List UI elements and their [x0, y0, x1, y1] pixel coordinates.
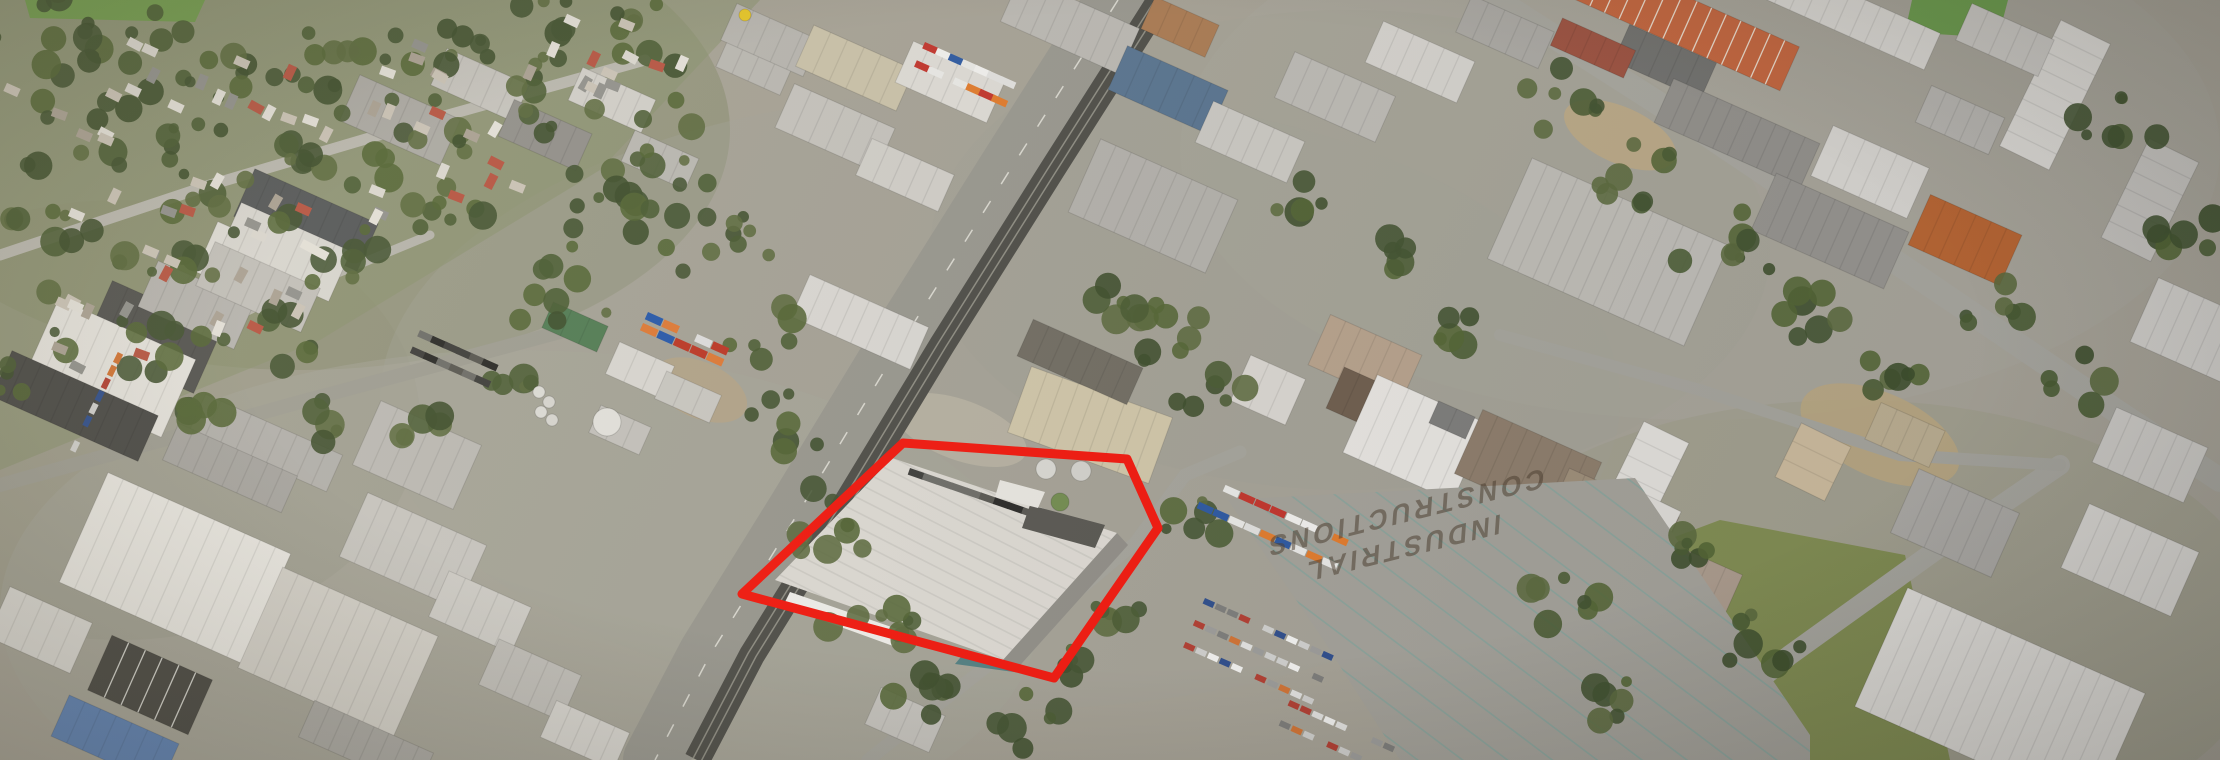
- tree: [730, 236, 747, 253]
- tree: [601, 308, 611, 318]
- tree: [359, 224, 370, 235]
- tree: [1668, 249, 1692, 273]
- tree: [1995, 297, 2013, 315]
- tree: [698, 208, 717, 227]
- tree: [1682, 538, 1693, 549]
- tree: [1783, 277, 1812, 306]
- tank: [1071, 461, 1091, 481]
- tank: [533, 386, 545, 398]
- tree: [185, 76, 196, 87]
- tree: [13, 383, 31, 401]
- tree: [698, 174, 717, 193]
- tree: [50, 327, 60, 337]
- tree: [778, 304, 807, 333]
- tree: [2144, 124, 2169, 149]
- tree: [875, 609, 887, 621]
- tree: [810, 438, 824, 452]
- tree: [673, 177, 687, 191]
- tree: [1626, 137, 1641, 152]
- tree: [1862, 379, 1884, 401]
- tree: [432, 196, 446, 210]
- tree: [298, 76, 315, 93]
- tree: [533, 259, 554, 280]
- tree: [2199, 239, 2216, 256]
- tree: [1793, 640, 1806, 653]
- tree: [6, 207, 30, 231]
- tree: [634, 110, 652, 128]
- tree: [1044, 712, 1056, 724]
- tree: [2081, 129, 2092, 140]
- tree: [296, 341, 318, 363]
- tree: [679, 155, 690, 166]
- tree: [750, 348, 773, 371]
- tree: [744, 407, 758, 421]
- tree: [73, 145, 89, 161]
- tree: [270, 354, 295, 379]
- tree: [412, 219, 428, 235]
- tree: [2102, 125, 2125, 148]
- tree: [518, 103, 533, 118]
- tree: [910, 660, 940, 690]
- tree: [207, 398, 236, 427]
- tree: [1534, 120, 1553, 139]
- tree: [302, 398, 329, 425]
- tree: [584, 99, 605, 120]
- tree: [0, 356, 16, 373]
- tree: [302, 26, 316, 40]
- tree: [1205, 361, 1232, 388]
- tank: [546, 414, 558, 426]
- tree: [345, 271, 359, 285]
- tree: [1161, 524, 1172, 535]
- tree: [1633, 191, 1653, 211]
- tree: [298, 142, 323, 167]
- tree: [702, 243, 720, 261]
- tree: [1293, 170, 1316, 193]
- tree: [1732, 613, 1750, 631]
- tree: [523, 284, 546, 307]
- tree: [1901, 367, 1915, 381]
- tree: [563, 218, 583, 238]
- tree: [921, 704, 941, 724]
- tree: [179, 169, 190, 180]
- tank: [1051, 493, 1069, 511]
- tree: [2041, 370, 2058, 387]
- tree: [1596, 183, 1618, 205]
- tree: [1270, 203, 1283, 216]
- tank: [739, 9, 751, 21]
- tree: [125, 26, 138, 39]
- tree: [388, 28, 404, 44]
- tree: [1809, 280, 1836, 307]
- tree: [641, 200, 660, 219]
- tree: [771, 438, 797, 464]
- tree: [1621, 676, 1632, 687]
- tree: [284, 153, 297, 166]
- tree: [743, 225, 756, 238]
- tree: [675, 264, 690, 279]
- tree: [1550, 57, 1573, 80]
- tree: [425, 402, 454, 431]
- tree: [1763, 263, 1775, 275]
- tree: [593, 192, 604, 203]
- tree: [32, 50, 61, 79]
- tree: [1517, 78, 1537, 98]
- tree: [2170, 220, 2198, 248]
- tree: [176, 397, 196, 417]
- tank: [535, 406, 547, 418]
- tree: [364, 236, 392, 264]
- tree: [2090, 367, 2119, 396]
- tree: [534, 123, 555, 144]
- tree: [1827, 307, 1852, 332]
- tree: [564, 265, 591, 292]
- tree: [1160, 497, 1187, 524]
- tree: [147, 267, 157, 277]
- tree: [1095, 273, 1121, 299]
- tree: [1205, 519, 1233, 547]
- tree: [781, 333, 798, 350]
- tree: [172, 20, 195, 43]
- tree: [761, 390, 780, 409]
- tree: [389, 423, 414, 448]
- tree: [1232, 375, 1259, 402]
- tree: [2115, 91, 2128, 104]
- tank: [1036, 459, 1056, 479]
- tree: [1960, 314, 1977, 331]
- tree: [118, 51, 142, 75]
- tree: [1589, 99, 1604, 114]
- tree: [469, 201, 497, 229]
- tree: [658, 239, 675, 256]
- tree: [1291, 198, 1314, 221]
- tree: [1183, 396, 1204, 417]
- tree: [185, 192, 200, 207]
- tree: [147, 311, 176, 340]
- tree: [155, 342, 184, 371]
- tree: [543, 288, 569, 314]
- tree: [400, 192, 425, 217]
- tree: [1789, 327, 1808, 346]
- tree: [1577, 595, 1591, 609]
- tree: [268, 211, 291, 234]
- tree: [623, 219, 649, 245]
- tree: [1019, 687, 1033, 701]
- tree: [566, 165, 584, 183]
- tree: [337, 40, 359, 62]
- tree: [200, 51, 219, 70]
- tree: [1548, 87, 1561, 100]
- aerial-scene: INDUSTRIAL CONSTRUCTIONS: [0, 0, 2220, 760]
- tree: [1438, 307, 1460, 329]
- tree: [678, 113, 705, 140]
- tree: [237, 171, 255, 189]
- tree: [1587, 708, 1613, 734]
- tank: [543, 396, 555, 408]
- tree: [2142, 215, 2170, 243]
- tree: [1384, 242, 1402, 260]
- tree: [1558, 572, 1570, 584]
- tree: [205, 267, 220, 282]
- tree: [986, 712, 1009, 735]
- tank: [593, 408, 621, 436]
- tree: [1138, 354, 1151, 367]
- tree: [1012, 738, 1033, 759]
- tree: [880, 683, 907, 710]
- tree: [126, 322, 147, 343]
- tree: [506, 75, 527, 96]
- tree: [77, 24, 92, 39]
- tree: [45, 204, 60, 219]
- tree: [328, 79, 342, 93]
- tree: [2078, 392, 2104, 418]
- tree: [470, 34, 490, 54]
- tree: [156, 123, 181, 148]
- tree: [77, 49, 101, 73]
- tree: [341, 249, 366, 274]
- tree: [1994, 272, 2017, 295]
- tree: [1315, 197, 1327, 209]
- tree: [640, 143, 655, 158]
- tree: [668, 92, 685, 109]
- tree: [311, 430, 335, 454]
- tree: [111, 157, 127, 173]
- tree: [191, 117, 205, 131]
- tree: [509, 309, 531, 331]
- tree: [334, 105, 351, 122]
- tree: [344, 176, 361, 193]
- tree: [1120, 294, 1149, 323]
- tree: [147, 4, 164, 21]
- tree: [783, 388, 794, 399]
- tree: [2075, 346, 2094, 365]
- tree: [570, 198, 585, 213]
- tree: [274, 133, 299, 158]
- tree: [304, 44, 325, 65]
- tree: [208, 195, 231, 218]
- tree: [664, 203, 690, 229]
- tree: [428, 93, 442, 107]
- tree: [1112, 606, 1140, 634]
- tree: [2064, 103, 2092, 131]
- tree: [362, 141, 388, 167]
- tree: [776, 411, 800, 435]
- tree: [1722, 653, 1737, 668]
- tree: [548, 311, 567, 330]
- tree: [41, 26, 66, 51]
- tree: [800, 475, 827, 502]
- tree: [1172, 342, 1189, 359]
- tree: [1772, 650, 1793, 671]
- tree: [24, 152, 52, 180]
- tree: [726, 215, 743, 232]
- tree: [1534, 610, 1562, 638]
- tree: [1662, 147, 1677, 162]
- tree: [380, 54, 392, 66]
- tree: [1526, 577, 1550, 601]
- tree: [1736, 229, 1759, 252]
- tree: [1610, 689, 1634, 713]
- tree: [191, 326, 212, 347]
- tree: [1698, 542, 1715, 559]
- tree: [31, 89, 56, 114]
- tree: [1220, 394, 1232, 406]
- tree: [1860, 351, 1881, 372]
- tree: [853, 539, 871, 557]
- tree: [762, 249, 775, 262]
- tree: [110, 241, 139, 270]
- tree: [813, 535, 842, 564]
- aerial-photograph: INDUSTRIAL CONSTRUCTIONS: [0, 0, 2220, 760]
- tree: [228, 226, 240, 238]
- tree: [444, 214, 456, 226]
- tree: [1734, 629, 1763, 658]
- tree: [99, 48, 111, 60]
- tree: [305, 274, 321, 290]
- tree: [566, 241, 578, 253]
- tree: [1187, 306, 1210, 329]
- tree: [59, 228, 84, 253]
- tree: [1581, 673, 1610, 702]
- tree: [214, 123, 229, 138]
- tree: [265, 68, 283, 86]
- tree: [1460, 307, 1479, 326]
- tree: [1733, 204, 1751, 222]
